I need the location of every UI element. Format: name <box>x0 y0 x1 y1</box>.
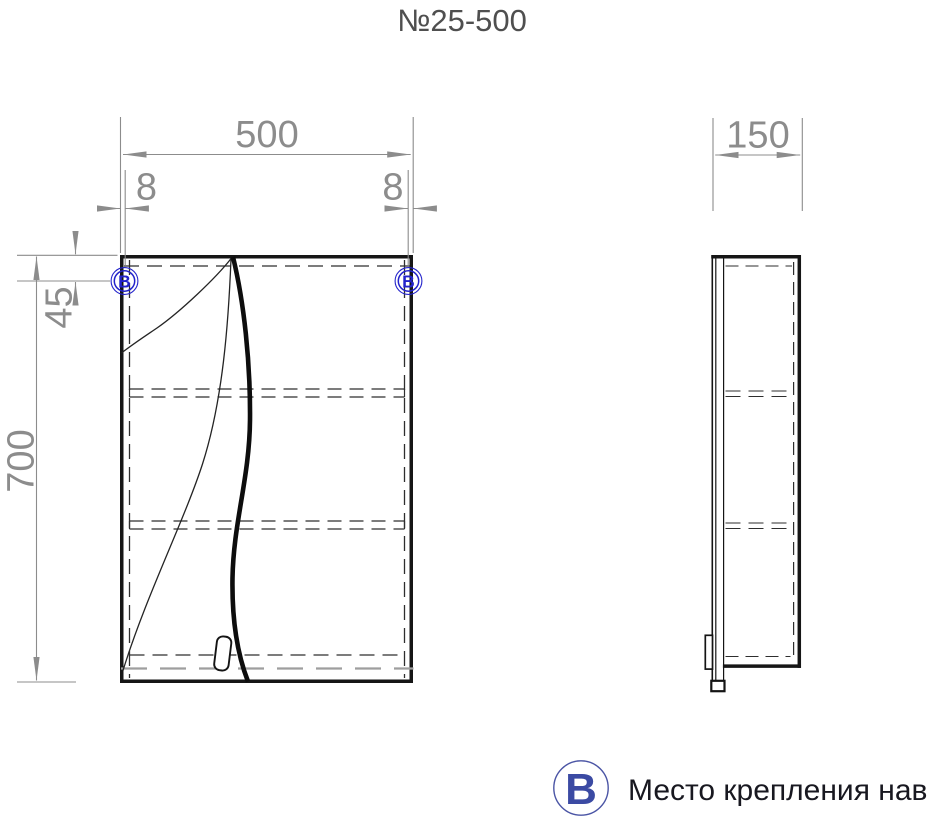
dim-depth-label: 150 <box>726 115 789 157</box>
dim-height-label: 700 <box>1 429 43 492</box>
front-view: В В <box>111 257 422 682</box>
dim-offset-left-label: 8 <box>136 167 157 209</box>
side-door-handle <box>705 635 712 669</box>
marker-letter: В <box>402 272 415 292</box>
dim-offset-right-label: 8 <box>382 167 403 209</box>
drawing-title: №25-500 <box>397 3 527 38</box>
marker-letter: В <box>118 272 131 292</box>
cabinet-outline <box>122 257 412 682</box>
side-door-bottom-tip <box>711 681 724 691</box>
technical-drawing-canvas: №25-500 В В <box>0 0 928 816</box>
dim-hanger-top-label: 45 <box>39 286 81 328</box>
side-view <box>705 255 801 691</box>
technical-drawing-page: №25-500 В В <box>0 0 928 816</box>
legend: В Место крепления навесов <box>554 761 928 815</box>
door-handle <box>213 636 232 672</box>
legend-marker-letter: В <box>565 765 597 814</box>
legend-label: Место крепления навесов <box>628 774 928 807</box>
side-shelf-hidden-lines <box>726 391 791 529</box>
dim-width-label: 500 <box>235 114 298 156</box>
